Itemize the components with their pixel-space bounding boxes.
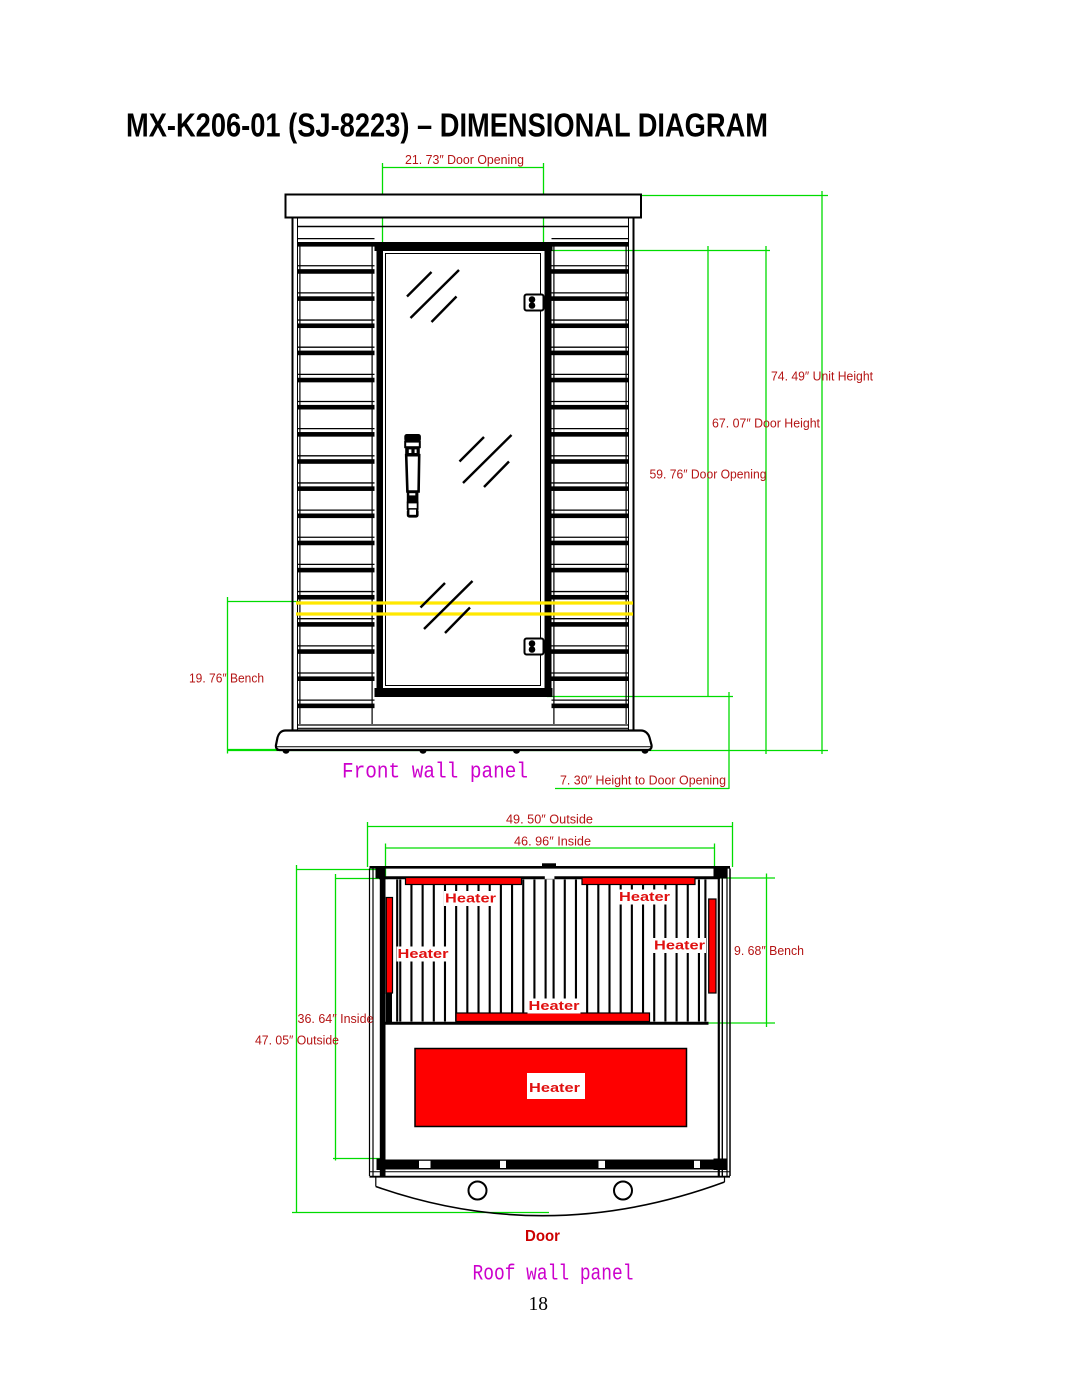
svg-text:74. 49″ Unit Height: 74. 49″ Unit Height bbox=[771, 369, 873, 384]
svg-text:7. 30″ Height to Door Opening: 7. 30″ Height to Door Opening bbox=[560, 773, 726, 788]
svg-text:Heater: Heater bbox=[619, 889, 670, 904]
svg-text:18: 18 bbox=[529, 1294, 549, 1315]
svg-text:Heater: Heater bbox=[529, 1080, 580, 1095]
svg-text:19. 76″ Bench: 19. 76″ Bench bbox=[189, 671, 264, 686]
svg-text:Heater: Heater bbox=[445, 891, 496, 906]
svg-text:47. 05″ Outside: 47. 05″ Outside bbox=[255, 1033, 339, 1048]
svg-text:Front wall panel: Front wall panel bbox=[342, 760, 528, 785]
svg-text:67. 07″ Door Height: 67. 07″ Door Height bbox=[712, 416, 820, 431]
svg-text:Heater: Heater bbox=[654, 938, 705, 953]
svg-text:MX-K206-01 (SJ-8223) – DIMENSI: MX-K206-01 (SJ-8223) – DIMENSIONAL DIAGR… bbox=[126, 107, 768, 144]
svg-text:Door: Door bbox=[525, 1228, 560, 1245]
svg-text:36. 64″ Inside: 36. 64″ Inside bbox=[298, 1011, 374, 1026]
svg-text:59. 76″ Door Opening: 59. 76″ Door Opening bbox=[650, 467, 767, 482]
svg-text:Heater: Heater bbox=[398, 946, 449, 961]
svg-text:49. 50″ Outside: 49. 50″ Outside bbox=[506, 812, 593, 827]
svg-text:9. 68″ Bench: 9. 68″ Bench bbox=[734, 943, 804, 958]
svg-text:46. 96″ Inside: 46. 96″ Inside bbox=[514, 833, 591, 848]
svg-text:Heater: Heater bbox=[529, 998, 580, 1013]
svg-text:21. 73″ Door Opening: 21. 73″ Door Opening bbox=[405, 152, 524, 167]
svg-text:Roof wall panel: Roof wall panel bbox=[473, 1262, 634, 1287]
